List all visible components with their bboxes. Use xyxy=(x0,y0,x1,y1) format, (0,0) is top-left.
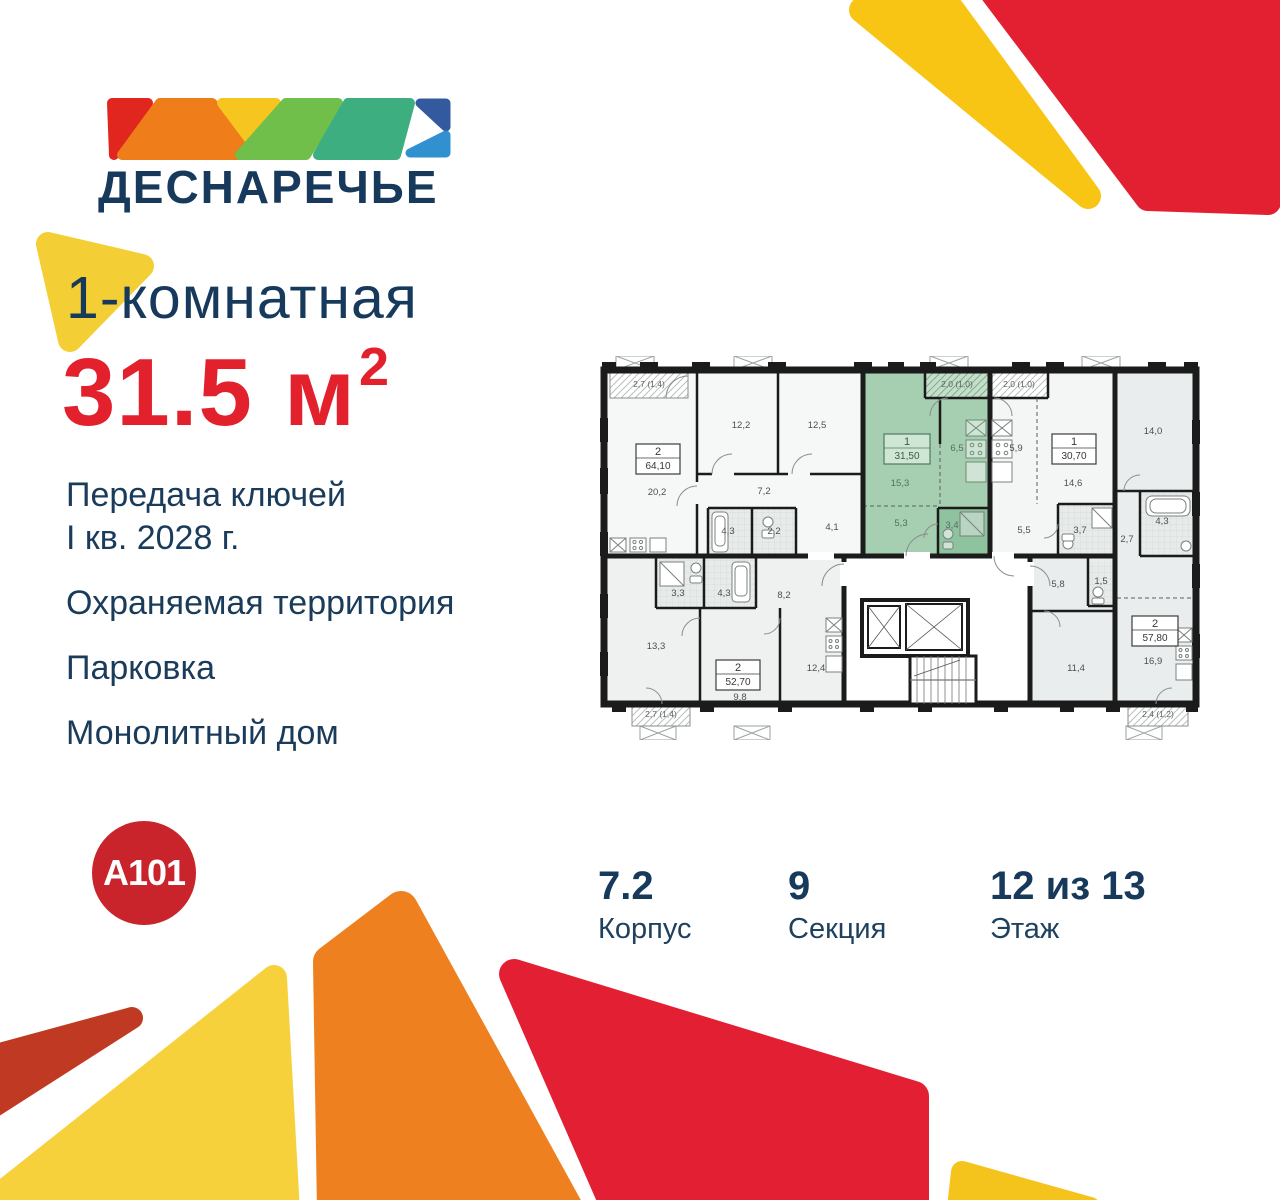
feature-building: Монолитный дом xyxy=(66,712,454,755)
elevator-core xyxy=(862,600,968,656)
svg-text:2,2: 2,2 xyxy=(767,526,780,537)
feature-list: Передача ключей I кв. 2028 г. Охраняемая… xyxy=(66,474,454,777)
svg-text:2,7 (1,4): 2,7 (1,4) xyxy=(645,709,677,719)
svg-text:1: 1 xyxy=(1071,436,1077,448)
svg-text:14,0: 14,0 xyxy=(1144,426,1163,437)
a101-logo-text: A101 xyxy=(103,852,185,894)
feature-keys: Передача ключей I кв. 2028 г. xyxy=(66,474,454,560)
area-superscript: 2 xyxy=(359,337,389,397)
svg-text:2,0 (1,0): 2,0 (1,0) xyxy=(941,379,973,389)
stat-floor-value: 12 из 13 xyxy=(990,866,1146,906)
svg-text:20,2: 20,2 xyxy=(648,487,667,498)
svg-text:30,70: 30,70 xyxy=(1061,451,1086,462)
svg-text:2,7 (1,4): 2,7 (1,4) xyxy=(633,379,665,389)
svg-text:4,3: 4,3 xyxy=(721,526,734,537)
feature-keys-line2: I кв. 2028 г. xyxy=(66,517,454,560)
svg-text:11,4: 11,4 xyxy=(1067,663,1085,674)
stats-bar: 7.2 Корпус 9 Секция 12 из 13 Этаж xyxy=(598,866,1218,956)
badge-unit-527: 2 52,70 xyxy=(716,660,760,690)
feature-parking: Парковка xyxy=(66,647,454,690)
svg-text:12,5: 12,5 xyxy=(808,420,827,431)
badge-unit-64: 2 64,10 xyxy=(636,444,680,474)
svg-text:3,4: 3,4 xyxy=(945,520,958,531)
badge-unit-578: 2 57,80 xyxy=(1132,616,1178,646)
stat-floor: 12 из 13 Этаж xyxy=(990,866,1146,946)
svg-text:52,70: 52,70 xyxy=(725,677,750,688)
svg-text:12,4: 12,4 xyxy=(807,663,826,674)
svg-text:64,10: 64,10 xyxy=(645,461,670,472)
stat-block: 7.2 Корпус xyxy=(598,866,692,946)
stat-block-label: Корпус xyxy=(598,913,692,946)
svg-text:57,80: 57,80 xyxy=(1142,633,1167,644)
svg-text:2: 2 xyxy=(1152,618,1158,630)
svg-text:14,6: 14,6 xyxy=(1064,478,1083,489)
svg-text:31,50: 31,50 xyxy=(894,451,919,462)
area-value: 31.5 xyxy=(62,339,253,446)
stat-section-label: Секция xyxy=(788,913,886,946)
svg-text:7,2: 7,2 xyxy=(757,486,770,497)
svg-text:4,1: 4,1 xyxy=(825,522,838,533)
svg-text:5,9: 5,9 xyxy=(1009,443,1022,454)
stat-block-value: 7.2 xyxy=(598,866,692,906)
floor-plan: 20,2 12,2 12,5 7,2 4,3 2,2 4,1 2,7 (1,4)… xyxy=(600,356,1200,740)
svg-text:15,3: 15,3 xyxy=(891,478,910,489)
svg-text:12,2: 12,2 xyxy=(732,420,751,431)
svg-text:3,7: 3,7 xyxy=(1073,525,1086,536)
svg-text:9,8: 9,8 xyxy=(733,692,746,703)
bottom-small-yellow-shape xyxy=(958,1172,1090,1200)
bottom-yellow-shape xyxy=(0,978,287,1200)
bottom-red-shape xyxy=(514,974,914,1200)
svg-text:13,3: 13,3 xyxy=(647,641,666,652)
svg-text:2: 2 xyxy=(735,662,741,674)
stat-section: 9 Секция xyxy=(788,866,886,946)
stairs xyxy=(910,656,976,704)
svg-text:5,3: 5,3 xyxy=(894,518,907,529)
svg-text:3,3: 3,3 xyxy=(671,588,684,599)
rooms-title: 1-комнатная xyxy=(66,264,418,332)
stat-section-value: 9 xyxy=(788,866,886,906)
apartment-area: 31.5 м2 xyxy=(62,338,385,448)
svg-text:2,7: 2,7 xyxy=(1120,534,1133,545)
svg-text:4,3: 4,3 xyxy=(1155,516,1168,527)
feature-keys-line1: Передача ключей xyxy=(66,474,454,517)
brand-logo-mosaic xyxy=(100,95,456,163)
svg-text:2: 2 xyxy=(655,446,661,458)
svg-text:6,5: 6,5 xyxy=(950,443,963,454)
svg-text:5,5: 5,5 xyxy=(1017,525,1030,536)
svg-text:1: 1 xyxy=(904,436,910,448)
stat-floor-label: Этаж xyxy=(990,913,1146,946)
svg-text:16,9: 16,9 xyxy=(1144,656,1163,667)
bottom-orange-shape xyxy=(330,908,568,1200)
brand-name: ДЕСНАРЕЧЬЕ xyxy=(98,160,518,214)
feature-security: Охраняемая территория xyxy=(66,582,454,625)
area-unit: м xyxy=(257,339,355,446)
svg-text:4,3: 4,3 xyxy=(717,588,730,599)
svg-text:1,5: 1,5 xyxy=(1094,576,1107,587)
badge-unit-307: 1 30,70 xyxy=(1052,434,1096,464)
logo-lightblue-shape xyxy=(410,135,446,153)
badge-unit-315-highlighted: 1 31,50 xyxy=(884,434,930,464)
svg-text:8,2: 8,2 xyxy=(777,590,790,601)
svg-text:2,0 (1,0): 2,0 (1,0) xyxy=(1003,379,1035,389)
logo-darkblue-shape xyxy=(420,103,446,127)
a101-logo: A101 xyxy=(92,821,196,925)
svg-text:5,8: 5,8 xyxy=(1051,579,1064,590)
svg-text:2,4 (1,2): 2,4 (1,2) xyxy=(1142,709,1174,719)
